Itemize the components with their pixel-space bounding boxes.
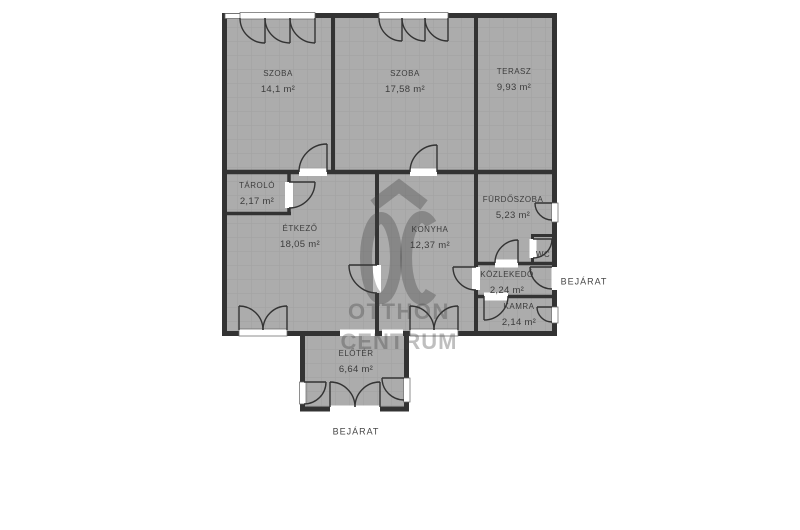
- furdoszoba-window-opening: [552, 203, 559, 222]
- konyha-door-opening: [472, 267, 480, 290]
- furdoszoba-door-opening: [495, 260, 518, 268]
- szoba1-window-opening: [240, 13, 315, 20]
- eloter-left-window-opening: [300, 382, 307, 404]
- kamra-window-opening: [552, 307, 559, 323]
- szoba1-door-opening: [299, 169, 327, 177]
- floorplan-page: OTTHON CENTRUM SZOBA 14,1 m² SZOBA 17,58…: [0, 0, 800, 530]
- kamra-door-opening: [484, 293, 508, 301]
- wc-door-opening: [530, 239, 537, 258]
- eloter-right-window-opening: [404, 378, 411, 402]
- entry-door-opening: [552, 267, 559, 290]
- szoba2-window-opening: [379, 13, 448, 20]
- watermark-line1: OTTHON: [348, 299, 450, 324]
- etkezo-window-opening: [239, 329, 287, 336]
- tarolo-door-opening: [285, 182, 293, 208]
- floorplan-drawing: OTTHON CENTRUM: [0, 0, 800, 530]
- szoba2-door-opening: [410, 169, 437, 177]
- watermark-line2: CENTRUM: [341, 329, 458, 354]
